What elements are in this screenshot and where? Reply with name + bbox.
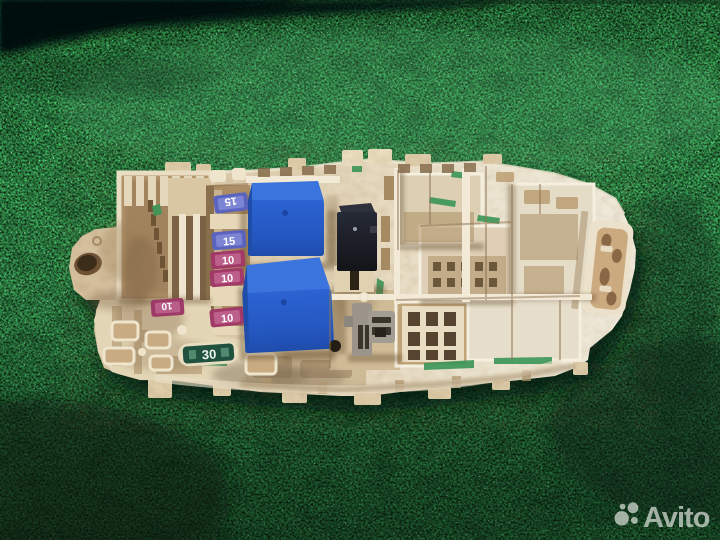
svg-text:30: 30 [201,346,216,362]
svg-text:15: 15 [224,194,238,207]
svg-text:10: 10 [220,312,233,325]
svg-text:15: 15 [223,235,236,248]
svg-text:Avito: Avito [643,502,710,534]
svg-text:10: 10 [221,254,234,267]
svg-text:10: 10 [221,272,234,285]
svg-text:10: 10 [161,300,173,312]
